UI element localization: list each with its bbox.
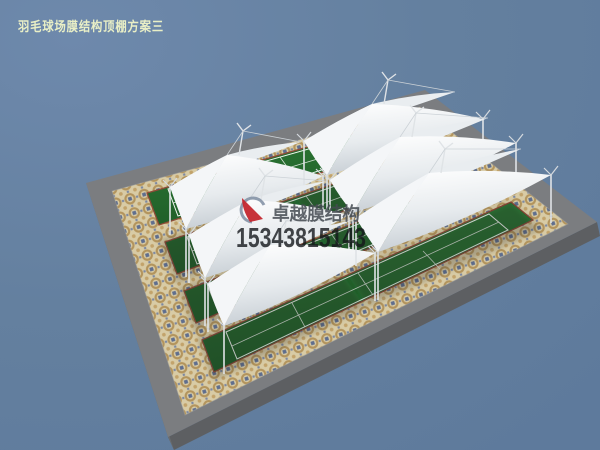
- page-title: 羽毛球场膜结构顶棚方案三: [18, 19, 164, 34]
- scene-canvas: 羽毛球场膜结构顶棚方案三 卓越膜结构 15343815143: [0, 0, 600, 450]
- watermark-phone-text: 15343815143: [236, 222, 366, 253]
- watermark-brand-text: 卓越膜结构: [272, 203, 360, 224]
- render-viewport: 羽毛球场膜结构顶棚方案三 卓越膜结构 15343815143: [0, 0, 600, 450]
